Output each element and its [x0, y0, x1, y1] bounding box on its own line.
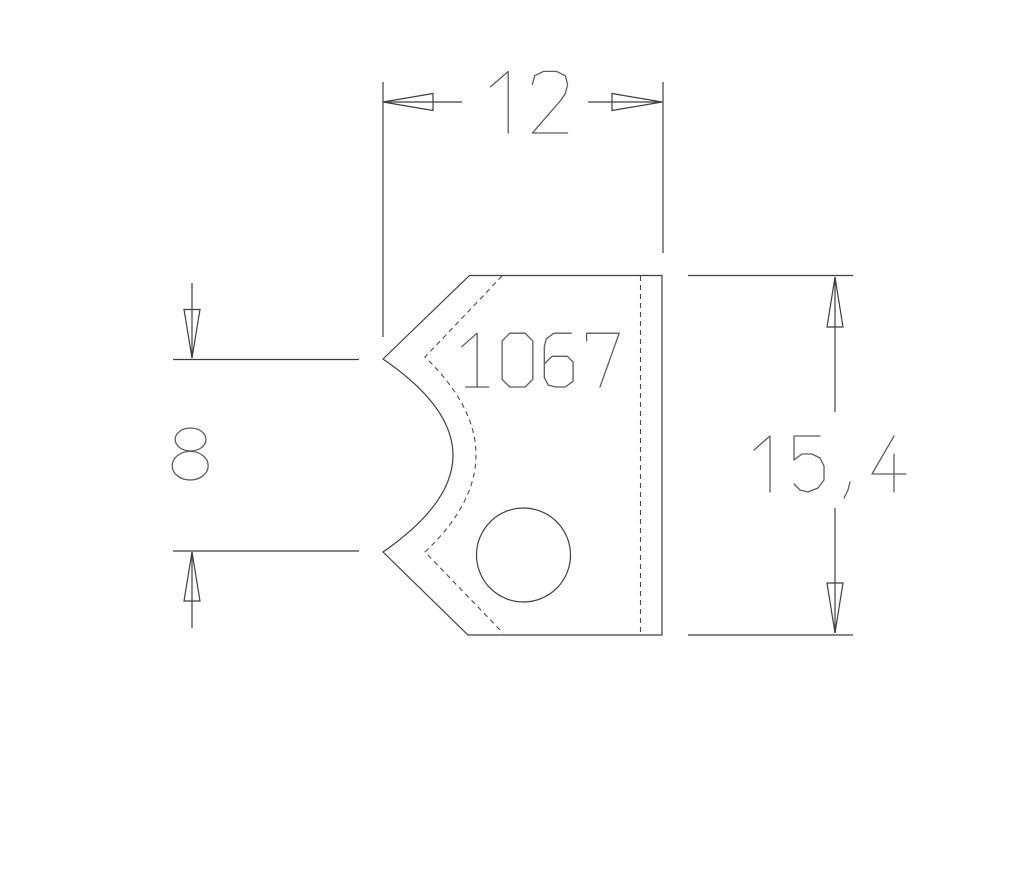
part-number-label — [462, 333, 619, 387]
dimension-notch-height-value — [172, 428, 208, 480]
dimension-overall-height-value — [754, 436, 906, 498]
cutting-edge-dashed-profile — [425, 276, 503, 633]
part-view — [383, 276, 662, 636]
technical-drawing — [0, 0, 1024, 876]
part-outer-profile — [383, 276, 662, 636]
dimension-notch-height — [172, 283, 359, 628]
dimension-width-value — [491, 71, 568, 133]
dimension-overall-height — [688, 276, 906, 636]
drawing-canvas — [0, 0, 1024, 876]
dimension-width — [383, 71, 663, 337]
mounting-hole — [477, 508, 571, 602]
